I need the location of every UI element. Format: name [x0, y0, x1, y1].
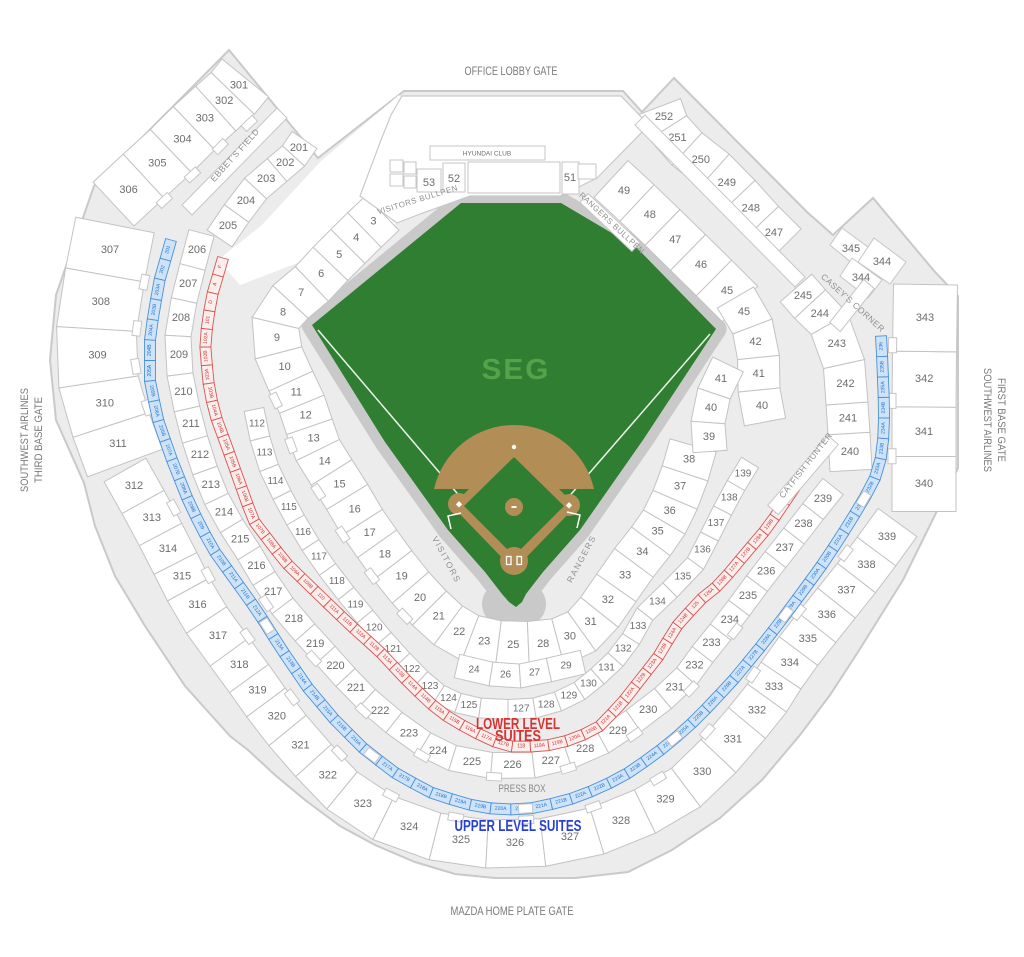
svg-text:46: 46	[695, 259, 707, 271]
svg-text:30: 30	[564, 631, 576, 643]
svg-text:316: 316	[188, 599, 206, 611]
svg-text:37: 37	[674, 481, 686, 493]
svg-text:102B: 102B	[203, 349, 210, 362]
svg-text:6: 6	[318, 268, 324, 280]
svg-text:MAZDA HOME PLATE GATE: MAZDA HOME PLATE GATE	[451, 904, 574, 918]
svg-text:40: 40	[705, 402, 717, 414]
svg-text:139: 139	[735, 469, 752, 480]
svg-text:318: 318	[230, 659, 248, 671]
svg-text:136: 136	[694, 545, 711, 556]
svg-text:10: 10	[278, 361, 290, 373]
svg-text:124: 124	[440, 693, 457, 704]
svg-text:332: 332	[748, 705, 766, 717]
svg-text:OFFICE LOBBY GATE: OFFICE LOBBY GATE	[465, 64, 558, 78]
svg-text:335: 335	[799, 633, 817, 645]
svg-text:232: 232	[685, 660, 703, 672]
svg-text:207: 207	[179, 278, 197, 290]
svg-text:33: 33	[619, 569, 631, 581]
svg-text:320: 320	[268, 711, 286, 723]
svg-text:323: 323	[354, 798, 372, 810]
svg-text:29: 29	[560, 661, 572, 672]
svg-text:310: 310	[96, 398, 114, 410]
svg-text:305: 305	[148, 158, 166, 170]
svg-text:112: 112	[249, 419, 265, 430]
svg-text:45: 45	[721, 285, 733, 297]
svg-text:211: 211	[182, 418, 200, 430]
svg-text:42: 42	[749, 336, 761, 348]
svg-text:216: 216	[247, 560, 265, 572]
svg-text:223: 223	[400, 727, 418, 739]
svg-text:SUITES: SUITES	[495, 728, 541, 745]
svg-text:313: 313	[143, 512, 161, 524]
svg-text:234B: 234B	[881, 401, 887, 413]
svg-text:51: 51	[564, 172, 576, 184]
svg-text:103A: 103A	[204, 368, 211, 381]
svg-text:32: 32	[602, 594, 614, 606]
svg-text:319: 319	[248, 685, 266, 697]
svg-text:PRESS BOX: PRESS BOX	[499, 783, 546, 795]
svg-text:3: 3	[370, 215, 376, 227]
svg-text:340: 340	[915, 478, 933, 490]
svg-text:252: 252	[655, 111, 673, 123]
svg-text:27: 27	[529, 668, 541, 679]
svg-text:231: 231	[666, 682, 684, 694]
svg-text:113: 113	[257, 448, 273, 459]
svg-text:224: 224	[429, 745, 447, 757]
svg-text:12: 12	[299, 410, 311, 422]
svg-text:345: 345	[842, 243, 860, 255]
svg-text:53: 53	[423, 177, 435, 189]
svg-text:SOUTHWEST AIRLINES: SOUTHWEST AIRLINES	[981, 368, 993, 472]
svg-text:341: 341	[915, 426, 933, 438]
svg-text:THIRD BASE GATE: THIRD BASE GATE	[33, 397, 45, 483]
svg-text:240: 240	[841, 446, 859, 458]
svg-text:308: 308	[92, 296, 110, 308]
svg-text:102A: 102A	[203, 331, 210, 344]
svg-text:236: 236	[757, 566, 775, 578]
svg-text:118: 118	[329, 576, 345, 587]
svg-text:225: 225	[463, 756, 481, 768]
svg-text:235B: 235B	[879, 360, 885, 373]
svg-text:45: 45	[738, 306, 750, 318]
svg-text:208: 208	[172, 312, 190, 324]
svg-text:204: 204	[237, 195, 255, 207]
svg-text:244: 244	[811, 308, 829, 320]
svg-text:306: 306	[119, 184, 137, 196]
svg-text:5: 5	[336, 249, 342, 261]
svg-text:137: 137	[708, 518, 725, 529]
svg-text:343: 343	[916, 312, 934, 324]
svg-text:226: 226	[503, 759, 521, 771]
svg-text:128: 128	[538, 699, 555, 710]
svg-text:13: 13	[307, 433, 319, 445]
svg-text:130: 130	[580, 678, 597, 689]
svg-text:41: 41	[715, 373, 727, 385]
svg-text:336: 336	[818, 609, 836, 621]
svg-text:HYUNDAI CLUB: HYUNDAI CLUB	[463, 151, 511, 158]
svg-text:311: 311	[109, 438, 127, 450]
svg-text:114: 114	[268, 476, 284, 487]
svg-text:28: 28	[537, 638, 549, 650]
svg-text:UPPER LEVEL SUITES: UPPER LEVEL SUITES	[455, 818, 582, 835]
svg-text:133: 133	[630, 621, 647, 632]
svg-text:239: 239	[814, 493, 832, 505]
svg-text:131: 131	[598, 663, 615, 674]
svg-text:203: 203	[257, 173, 275, 185]
svg-text:117: 117	[311, 552, 327, 563]
svg-text:328: 328	[612, 815, 630, 827]
svg-text:116: 116	[295, 527, 311, 538]
svg-text:119: 119	[348, 600, 364, 611]
svg-text:217: 217	[264, 586, 282, 598]
svg-text:129: 129	[560, 691, 577, 702]
svg-text:11: 11	[291, 387, 302, 399]
svg-text:242: 242	[836, 378, 854, 390]
svg-text:236: 236	[878, 342, 884, 351]
svg-text:326: 326	[506, 837, 524, 849]
svg-text:213: 213	[202, 479, 220, 491]
svg-text:9: 9	[274, 332, 280, 344]
svg-text:321: 321	[291, 740, 309, 752]
svg-text:309: 309	[88, 350, 106, 362]
svg-text:317: 317	[209, 630, 227, 642]
svg-text:322: 322	[319, 770, 337, 782]
svg-text:17: 17	[364, 527, 376, 539]
svg-text:338: 338	[857, 559, 875, 571]
svg-text:315: 315	[173, 571, 191, 583]
svg-text:115: 115	[281, 502, 297, 513]
svg-text:39: 39	[703, 431, 715, 443]
svg-text:245: 245	[794, 290, 812, 302]
svg-text:7: 7	[298, 287, 304, 299]
svg-text:125: 125	[461, 700, 478, 711]
svg-text:235: 235	[739, 590, 757, 602]
svg-text:329: 329	[656, 794, 674, 806]
svg-text:201: 201	[290, 142, 308, 154]
svg-text:204B: 204B	[147, 344, 153, 356]
svg-text:202: 202	[276, 157, 294, 169]
svg-text:238: 238	[794, 518, 812, 530]
svg-text:209: 209	[170, 349, 188, 361]
svg-text:237: 237	[776, 542, 794, 554]
svg-text:101: 101	[205, 315, 212, 324]
svg-text:333: 333	[765, 681, 783, 693]
svg-text:206: 206	[188, 244, 206, 256]
svg-text:312: 312	[125, 480, 143, 492]
svg-text:247: 247	[765, 227, 783, 239]
svg-text:41: 41	[753, 368, 765, 380]
svg-text:304: 304	[173, 134, 191, 146]
svg-text:8: 8	[280, 306, 286, 318]
svg-text:331: 331	[724, 734, 742, 746]
svg-text:214: 214	[215, 507, 233, 519]
svg-text:26: 26	[500, 670, 512, 681]
svg-text:18: 18	[379, 549, 391, 561]
svg-text:14: 14	[319, 455, 331, 467]
svg-text:205A: 205A	[147, 364, 153, 376]
svg-text:228: 228	[576, 743, 594, 755]
svg-text:4: 4	[353, 232, 359, 244]
svg-text:243: 243	[828, 338, 846, 350]
svg-text:SEG: SEG	[482, 354, 551, 386]
svg-text:307: 307	[101, 244, 119, 256]
svg-text:344: 344	[873, 256, 891, 268]
svg-text:135: 135	[674, 571, 691, 582]
svg-text:234A: 234A	[880, 422, 886, 435]
svg-text:FIRST BASE GATE: FIRST BASE GATE	[995, 378, 1007, 462]
svg-text:134: 134	[649, 597, 666, 608]
svg-text:34: 34	[636, 546, 648, 558]
svg-text:302: 302	[215, 95, 233, 107]
svg-text:303: 303	[196, 112, 214, 124]
svg-text:233: 233	[702, 637, 720, 649]
svg-text:22: 22	[453, 626, 465, 638]
svg-text:205: 205	[219, 220, 237, 232]
svg-text:19: 19	[395, 571, 407, 583]
svg-text:221: 221	[347, 682, 365, 694]
svg-text:47: 47	[669, 234, 681, 246]
svg-text:49: 49	[618, 185, 630, 197]
svg-text:249: 249	[718, 177, 736, 189]
svg-text:127: 127	[513, 703, 530, 714]
svg-text:15: 15	[333, 479, 345, 491]
svg-text:241: 241	[839, 413, 857, 425]
svg-text:SOUTHWEST AIRLINES: SOUTHWEST AIRLINES	[19, 388, 31, 492]
svg-text:210: 210	[174, 386, 192, 398]
svg-text:38: 38	[683, 453, 695, 465]
svg-text:21: 21	[433, 611, 445, 623]
svg-text:212: 212	[191, 449, 209, 461]
svg-text:48: 48	[644, 209, 656, 221]
svg-text:138: 138	[721, 493, 738, 504]
svg-text:220: 220	[326, 660, 344, 672]
svg-text:222: 222	[371, 705, 389, 717]
svg-text:229: 229	[609, 725, 627, 737]
svg-text:342: 342	[915, 373, 933, 385]
svg-text:132: 132	[615, 644, 632, 655]
svg-text:23: 23	[478, 635, 490, 647]
svg-text:235A: 235A	[880, 381, 886, 394]
svg-text:250: 250	[692, 154, 710, 166]
svg-text:218: 218	[285, 613, 303, 625]
svg-text:120: 120	[366, 622, 383, 633]
svg-text:330: 330	[693, 766, 711, 778]
svg-text:35: 35	[651, 526, 663, 538]
svg-text:20: 20	[414, 592, 426, 604]
svg-text:337: 337	[837, 585, 855, 597]
svg-text:24: 24	[468, 665, 480, 676]
svg-text:219: 219	[306, 638, 324, 650]
svg-text:301: 301	[230, 80, 248, 92]
svg-text:334: 334	[781, 657, 799, 669]
svg-text:314: 314	[159, 543, 177, 555]
svg-text:227: 227	[542, 755, 560, 767]
svg-text:215: 215	[231, 534, 249, 546]
svg-text:31: 31	[584, 616, 596, 628]
svg-text:324: 324	[400, 821, 418, 833]
svg-text:325: 325	[452, 834, 470, 846]
svg-text:36: 36	[664, 505, 676, 517]
svg-text:220A: 220A	[495, 806, 508, 813]
svg-text:230: 230	[639, 704, 657, 716]
svg-text:339: 339	[878, 531, 896, 543]
svg-text:16: 16	[349, 504, 361, 516]
svg-text:248: 248	[742, 203, 760, 215]
svg-text:40: 40	[756, 400, 768, 412]
svg-text:25: 25	[507, 639, 519, 651]
